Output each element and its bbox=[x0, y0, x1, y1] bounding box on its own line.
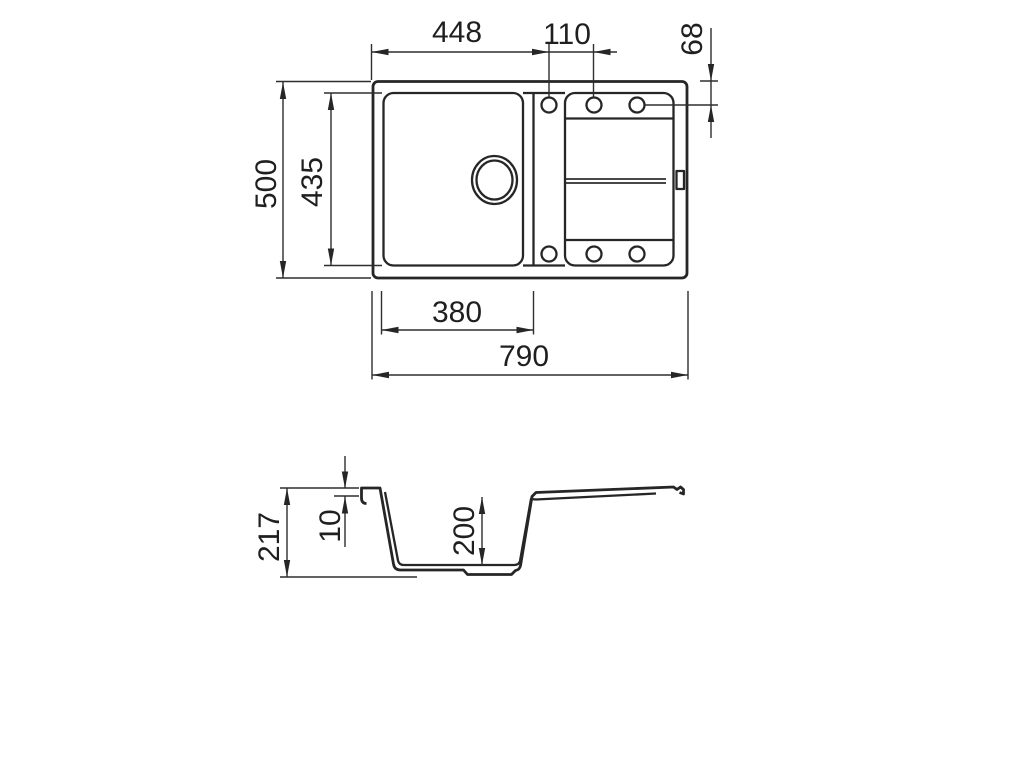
arrowhead bbox=[284, 488, 290, 505]
overflow-slot bbox=[677, 171, 685, 189]
top-view: 448 110 68 500 435 bbox=[250, 16, 718, 380]
section-profile bbox=[362, 487, 684, 575]
dim-label-435: 435 bbox=[296, 157, 329, 207]
top-view-outline bbox=[373, 82, 687, 279]
dim-label-217: 217 bbox=[253, 512, 286, 562]
tap-hole-bottom-1 bbox=[542, 247, 557, 262]
dim-label-68: 68 bbox=[676, 22, 709, 55]
profile-outer-contour bbox=[362, 487, 684, 575]
dim-label-10: 10 bbox=[314, 509, 347, 542]
arrowhead bbox=[328, 93, 334, 110]
arrowhead bbox=[372, 49, 389, 55]
arrowhead bbox=[708, 105, 714, 122]
arrowhead bbox=[372, 372, 389, 378]
arrowhead bbox=[342, 472, 348, 489]
drain-hole-outer-ring bbox=[472, 156, 517, 204]
tap-hole-top-1 bbox=[542, 98, 557, 113]
dim-label-790: 790 bbox=[499, 340, 549, 373]
dim-label-110: 110 bbox=[543, 18, 591, 51]
arrowhead bbox=[328, 249, 334, 266]
dim-label-448: 448 bbox=[432, 16, 482, 49]
arrowhead bbox=[671, 372, 688, 378]
dim-435: 435 bbox=[296, 93, 382, 266]
arrowhead bbox=[280, 82, 286, 99]
drain-hole-inner-ring bbox=[477, 161, 513, 200]
arrowhead bbox=[594, 49, 611, 55]
dim-448-110: 448 110 bbox=[372, 16, 618, 97]
arrowhead bbox=[280, 261, 286, 278]
arrowhead bbox=[382, 327, 399, 333]
tap-hole-top-2 bbox=[587, 98, 602, 113]
tap-hole-top-3 bbox=[630, 98, 645, 113]
sink-technical-drawing: 448 110 68 500 435 bbox=[0, 0, 1024, 768]
profile-inner-contour bbox=[385, 492, 656, 565]
drawing-canvas: 448 110 68 500 435 bbox=[0, 0, 1024, 768]
dim-10: 10 bbox=[314, 456, 359, 547]
dim-380: 380 bbox=[382, 291, 534, 335]
dim-label-200: 200 bbox=[448, 506, 481, 556]
tap-hole-bottom-3 bbox=[630, 247, 645, 262]
arrowhead bbox=[708, 64, 714, 81]
tap-hole-bottom-2 bbox=[587, 247, 602, 262]
dim-790: 790 bbox=[372, 291, 688, 380]
section-view: 217 10 200 bbox=[253, 456, 684, 577]
arrowhead bbox=[517, 327, 534, 333]
dim-200: 200 bbox=[448, 497, 485, 565]
dim-label-380: 380 bbox=[432, 296, 482, 329]
basin-outline bbox=[384, 93, 524, 266]
dim-label-500: 500 bbox=[250, 159, 283, 209]
